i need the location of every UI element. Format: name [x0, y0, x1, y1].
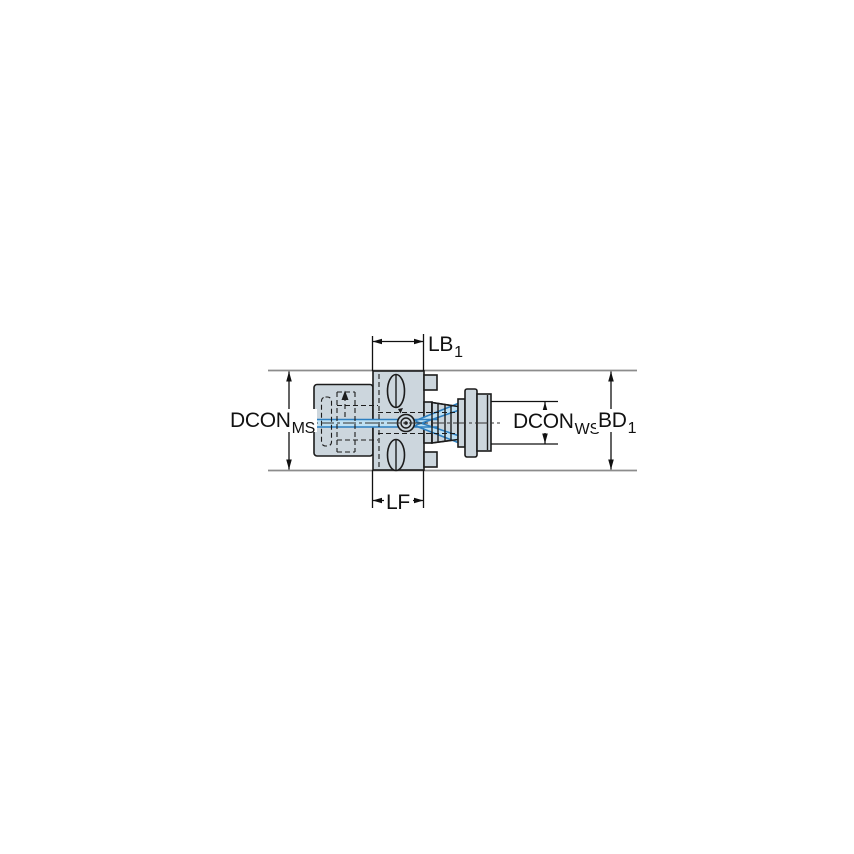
gripper-tab-top: [424, 375, 437, 390]
label-dcon-ms-main: DCON: [230, 409, 291, 432]
lb1-arrow-right: [414, 339, 424, 344]
bd1-arrow-down: [608, 460, 614, 470]
label-lb1-main: LB: [428, 333, 453, 356]
label-lf: LF: [384, 491, 413, 514]
label-lb1: LB1: [426, 333, 465, 356]
label-lf-main: LF: [386, 491, 410, 514]
dconms-arrow-up: [286, 372, 292, 382]
lf-arrow-right: [414, 498, 424, 503]
label-lb1-sub: 1: [454, 344, 463, 361]
label-bd1: BD1: [596, 409, 638, 432]
label-dcon-ws-main: DCON: [513, 410, 574, 433]
lf-arrow-left: [373, 498, 383, 503]
dconms-arrow-down: [286, 460, 292, 470]
lb1-arrow-left: [373, 339, 383, 344]
dconws-arrow-down: [542, 434, 548, 444]
drawing-canvas: LB1 DCONMS DCONWS BD1 LF: [0, 0, 854, 854]
label-dcon-ms-sub: MS: [292, 420, 315, 437]
label-dcon-ws: DCONWS: [511, 410, 602, 433]
adapter-drawing: [0, 0, 854, 854]
label-bd1-sub: 1: [628, 420, 637, 437]
label-dcon-ms: DCONMS: [228, 409, 317, 432]
gripper-tab-bottom: [424, 452, 437, 467]
bd1-arrow-up: [608, 372, 614, 382]
label-bd1-main: BD: [598, 409, 627, 432]
